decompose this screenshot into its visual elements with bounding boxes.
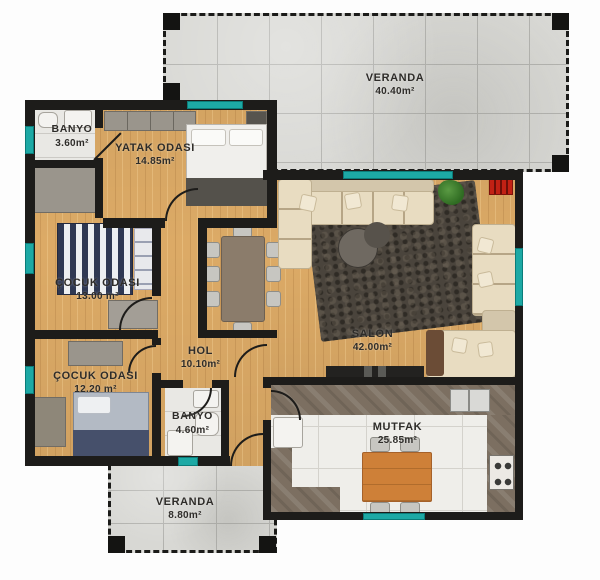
window-marker (187, 101, 243, 109)
window-marker (343, 171, 453, 179)
window-marker (178, 457, 198, 466)
room-label-cocuk-odasi-2: ÇOCUK ODASI 12.20 m² (38, 369, 153, 396)
room-area: 25.85m² (355, 434, 440, 447)
plant-icon (438, 180, 464, 205)
wall (515, 170, 523, 520)
cushion-icon (344, 192, 363, 211)
cushion-icon (299, 194, 318, 213)
chair-icon (266, 266, 281, 282)
room-area: 14.85m² (95, 155, 215, 168)
kitchen-sink-icon (450, 389, 490, 412)
wardrobe-icon (68, 341, 123, 366)
floor-plan: VERANDA 40.40m² BANYO 3.60m² YATAK ODASI… (0, 0, 600, 580)
room-label-banyo-bottom: BANYO 4.60m² (160, 410, 225, 437)
room-name: ÇOCUK ODASI (38, 369, 153, 383)
room-label-cocuk-odasi-1: ÇOCUK ODASI 13.00 m² (40, 276, 155, 303)
pillow-icon (77, 396, 111, 414)
room-name: SALON (330, 327, 415, 341)
room-name: VERANDA (330, 71, 460, 85)
room-label-yatak-odasi: YATAK ODASI 14.85m² (95, 141, 215, 168)
room-area: 10.10m² (168, 358, 233, 371)
room-name: ÇOCUK ODASI (40, 276, 155, 290)
room-label-salon: SALON 42.00m² (330, 327, 415, 354)
room-name: BANYO (40, 123, 104, 137)
room-area: 42.00m² (330, 341, 415, 354)
kitchen-table-icon (362, 452, 432, 502)
fridge-icon (273, 417, 303, 448)
chair-icon (205, 266, 220, 282)
corner-post (259, 536, 276, 553)
corner-post (108, 536, 125, 553)
kitchen-counter (271, 487, 340, 512)
wall (263, 377, 523, 385)
room-name: YATAK ODASI (95, 141, 215, 155)
corner-post (163, 83, 180, 100)
room-label-hol: HOL 10.10m² (168, 344, 233, 371)
room-name: MUTFAK (355, 420, 440, 434)
cushion-icon (477, 271, 495, 289)
room-area: 40.40m² (330, 85, 460, 98)
coffee-table-icon (364, 222, 390, 248)
cooktop-icon (489, 455, 514, 490)
room-label-veranda-bottom: VERANDA 8.80m² (125, 495, 245, 522)
wall (263, 420, 271, 520)
wall (152, 338, 161, 345)
cushion-icon (391, 194, 409, 212)
room-area: 13.00 m² (40, 290, 155, 303)
room-name: HOL (168, 344, 233, 358)
wall (198, 330, 277, 338)
room-name: VERANDA (125, 495, 245, 509)
window-marker (25, 243, 34, 274)
room-area: 8.80m² (125, 509, 245, 522)
wall (103, 218, 165, 228)
wall (25, 160, 103, 168)
corner-post (552, 13, 569, 30)
wardrobe-icon (33, 166, 97, 213)
wall (25, 456, 230, 466)
wall (267, 100, 277, 228)
wall (198, 218, 207, 338)
window-marker (25, 126, 34, 154)
dining-table-icon (221, 236, 265, 322)
corner-post (163, 13, 180, 30)
window-marker (363, 513, 425, 520)
wall (25, 100, 35, 466)
cushion-icon (451, 337, 468, 354)
sofa-chaise-icon (426, 330, 444, 376)
desk-icon (33, 397, 66, 447)
window-marker (25, 366, 34, 394)
bed-blanket-icon (186, 178, 267, 206)
chair-icon (266, 291, 281, 307)
window-marker (515, 248, 523, 306)
wall (25, 330, 158, 339)
cushion-icon (477, 341, 494, 358)
chair-icon (205, 242, 220, 258)
chair-icon (205, 291, 220, 307)
room-label-mutfak: MUTFAK 25.85m² (355, 420, 440, 447)
wall (156, 380, 183, 388)
fireplace-stove-icon (489, 179, 513, 195)
room-name: BANYO (160, 410, 225, 424)
pillow-icon (229, 129, 263, 146)
wall (198, 218, 277, 228)
corner-post (552, 155, 569, 172)
wall (263, 377, 271, 388)
sofa-icon (278, 179, 312, 269)
room-label-veranda-top: VERANDA 40.40m² (330, 71, 460, 98)
room-area: 12.20 m² (38, 383, 153, 396)
wardrobe-icon (104, 111, 196, 131)
room-area: 4.60m² (160, 424, 225, 437)
